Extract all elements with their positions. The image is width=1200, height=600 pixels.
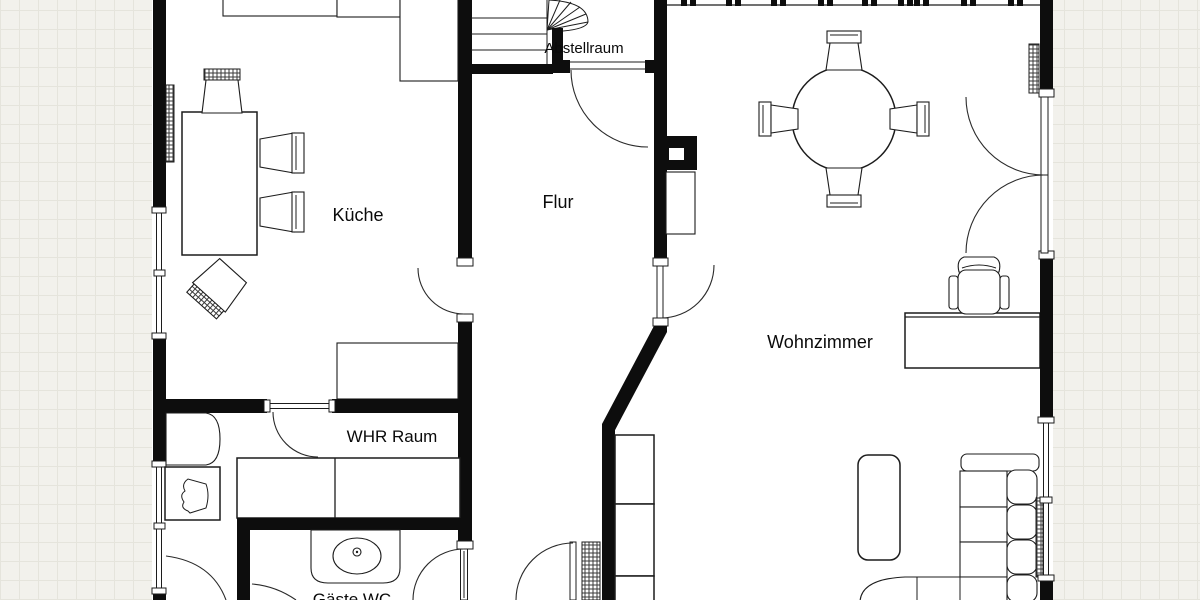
room-label-whr-raum: WHR Raum bbox=[347, 427, 438, 446]
office-chair bbox=[949, 257, 1009, 314]
room-label-flur: Flur bbox=[543, 192, 574, 212]
floor-plan-canvas: Küche Flur Abstellraum Wohnzimmer WHR Ra… bbox=[0, 0, 1200, 600]
room-label-wohnzimmer: Wohnzimmer bbox=[767, 332, 873, 352]
chair bbox=[826, 168, 862, 207]
entrance-door-leaf bbox=[570, 542, 576, 600]
dining-table-round bbox=[792, 67, 896, 171]
chair bbox=[260, 133, 304, 173]
radiator-flur bbox=[582, 542, 600, 600]
kitchen-appliance-block bbox=[337, 343, 458, 399]
chair bbox=[826, 31, 862, 70]
radiator-kitchen bbox=[166, 85, 174, 162]
room-label-kueche: Küche bbox=[332, 205, 383, 225]
wc-vanity bbox=[311, 530, 400, 583]
whr-cabinet bbox=[166, 413, 220, 465]
chimney bbox=[667, 136, 697, 170]
chair bbox=[202, 69, 242, 113]
desk bbox=[905, 313, 1040, 368]
kitchen-table bbox=[182, 112, 257, 255]
wardrobe-cabinets bbox=[615, 435, 654, 600]
radiator-wohnzimmer-top bbox=[1029, 44, 1039, 93]
kitchen-tall-unit bbox=[400, 0, 458, 81]
duct-shaft bbox=[666, 172, 695, 234]
room-label-abstellraum: Abstellraum bbox=[544, 40, 623, 57]
kitchen-counter bbox=[223, 0, 337, 16]
chair bbox=[260, 192, 304, 232]
stair-bottom-wall bbox=[471, 64, 553, 74]
radiator-wohnzimmer-window bbox=[1036, 498, 1043, 577]
kitchen-counter-2 bbox=[337, 0, 400, 17]
room-label-gaeste-wc: Gäste WC bbox=[313, 590, 391, 600]
whr-counter bbox=[237, 458, 460, 518]
floor-plan-drawing: Küche Flur Abstellraum Wohnzimmer WHR Ra… bbox=[0, 0, 1200, 600]
whr-sink-unit bbox=[165, 467, 220, 520]
coffee-table bbox=[858, 455, 900, 560]
